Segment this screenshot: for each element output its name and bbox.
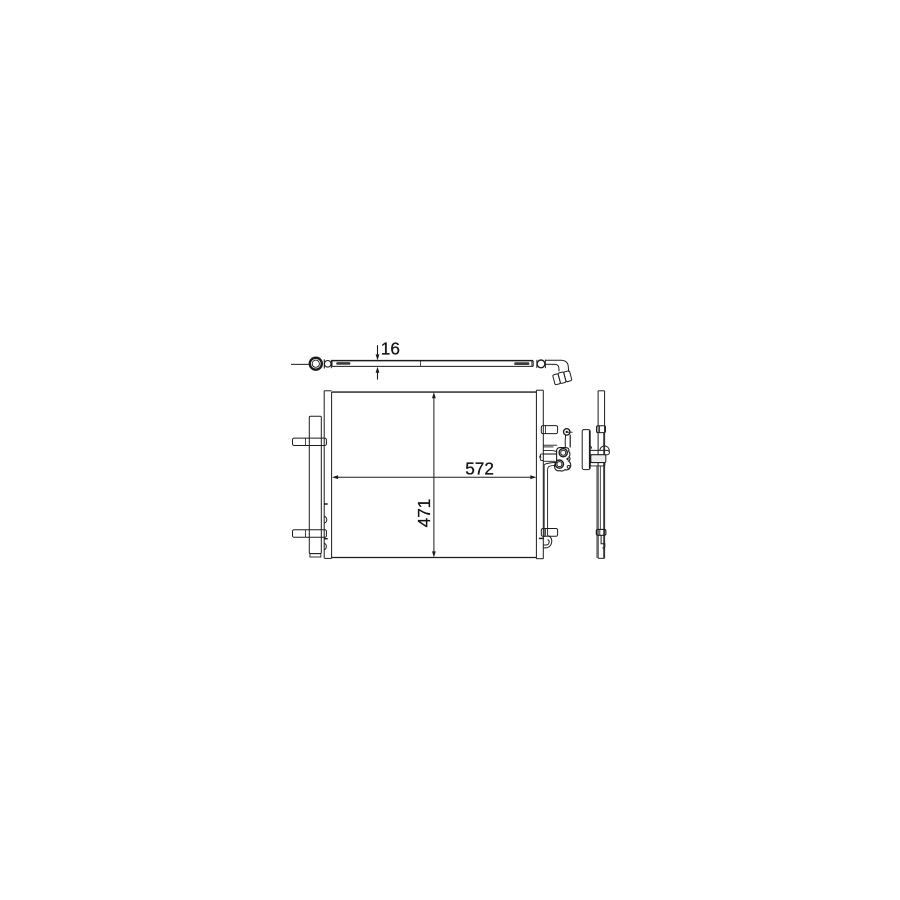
svg-text:471: 471 xyxy=(414,499,434,528)
svg-text:16: 16 xyxy=(381,338,400,358)
svg-text:572: 572 xyxy=(465,459,494,479)
